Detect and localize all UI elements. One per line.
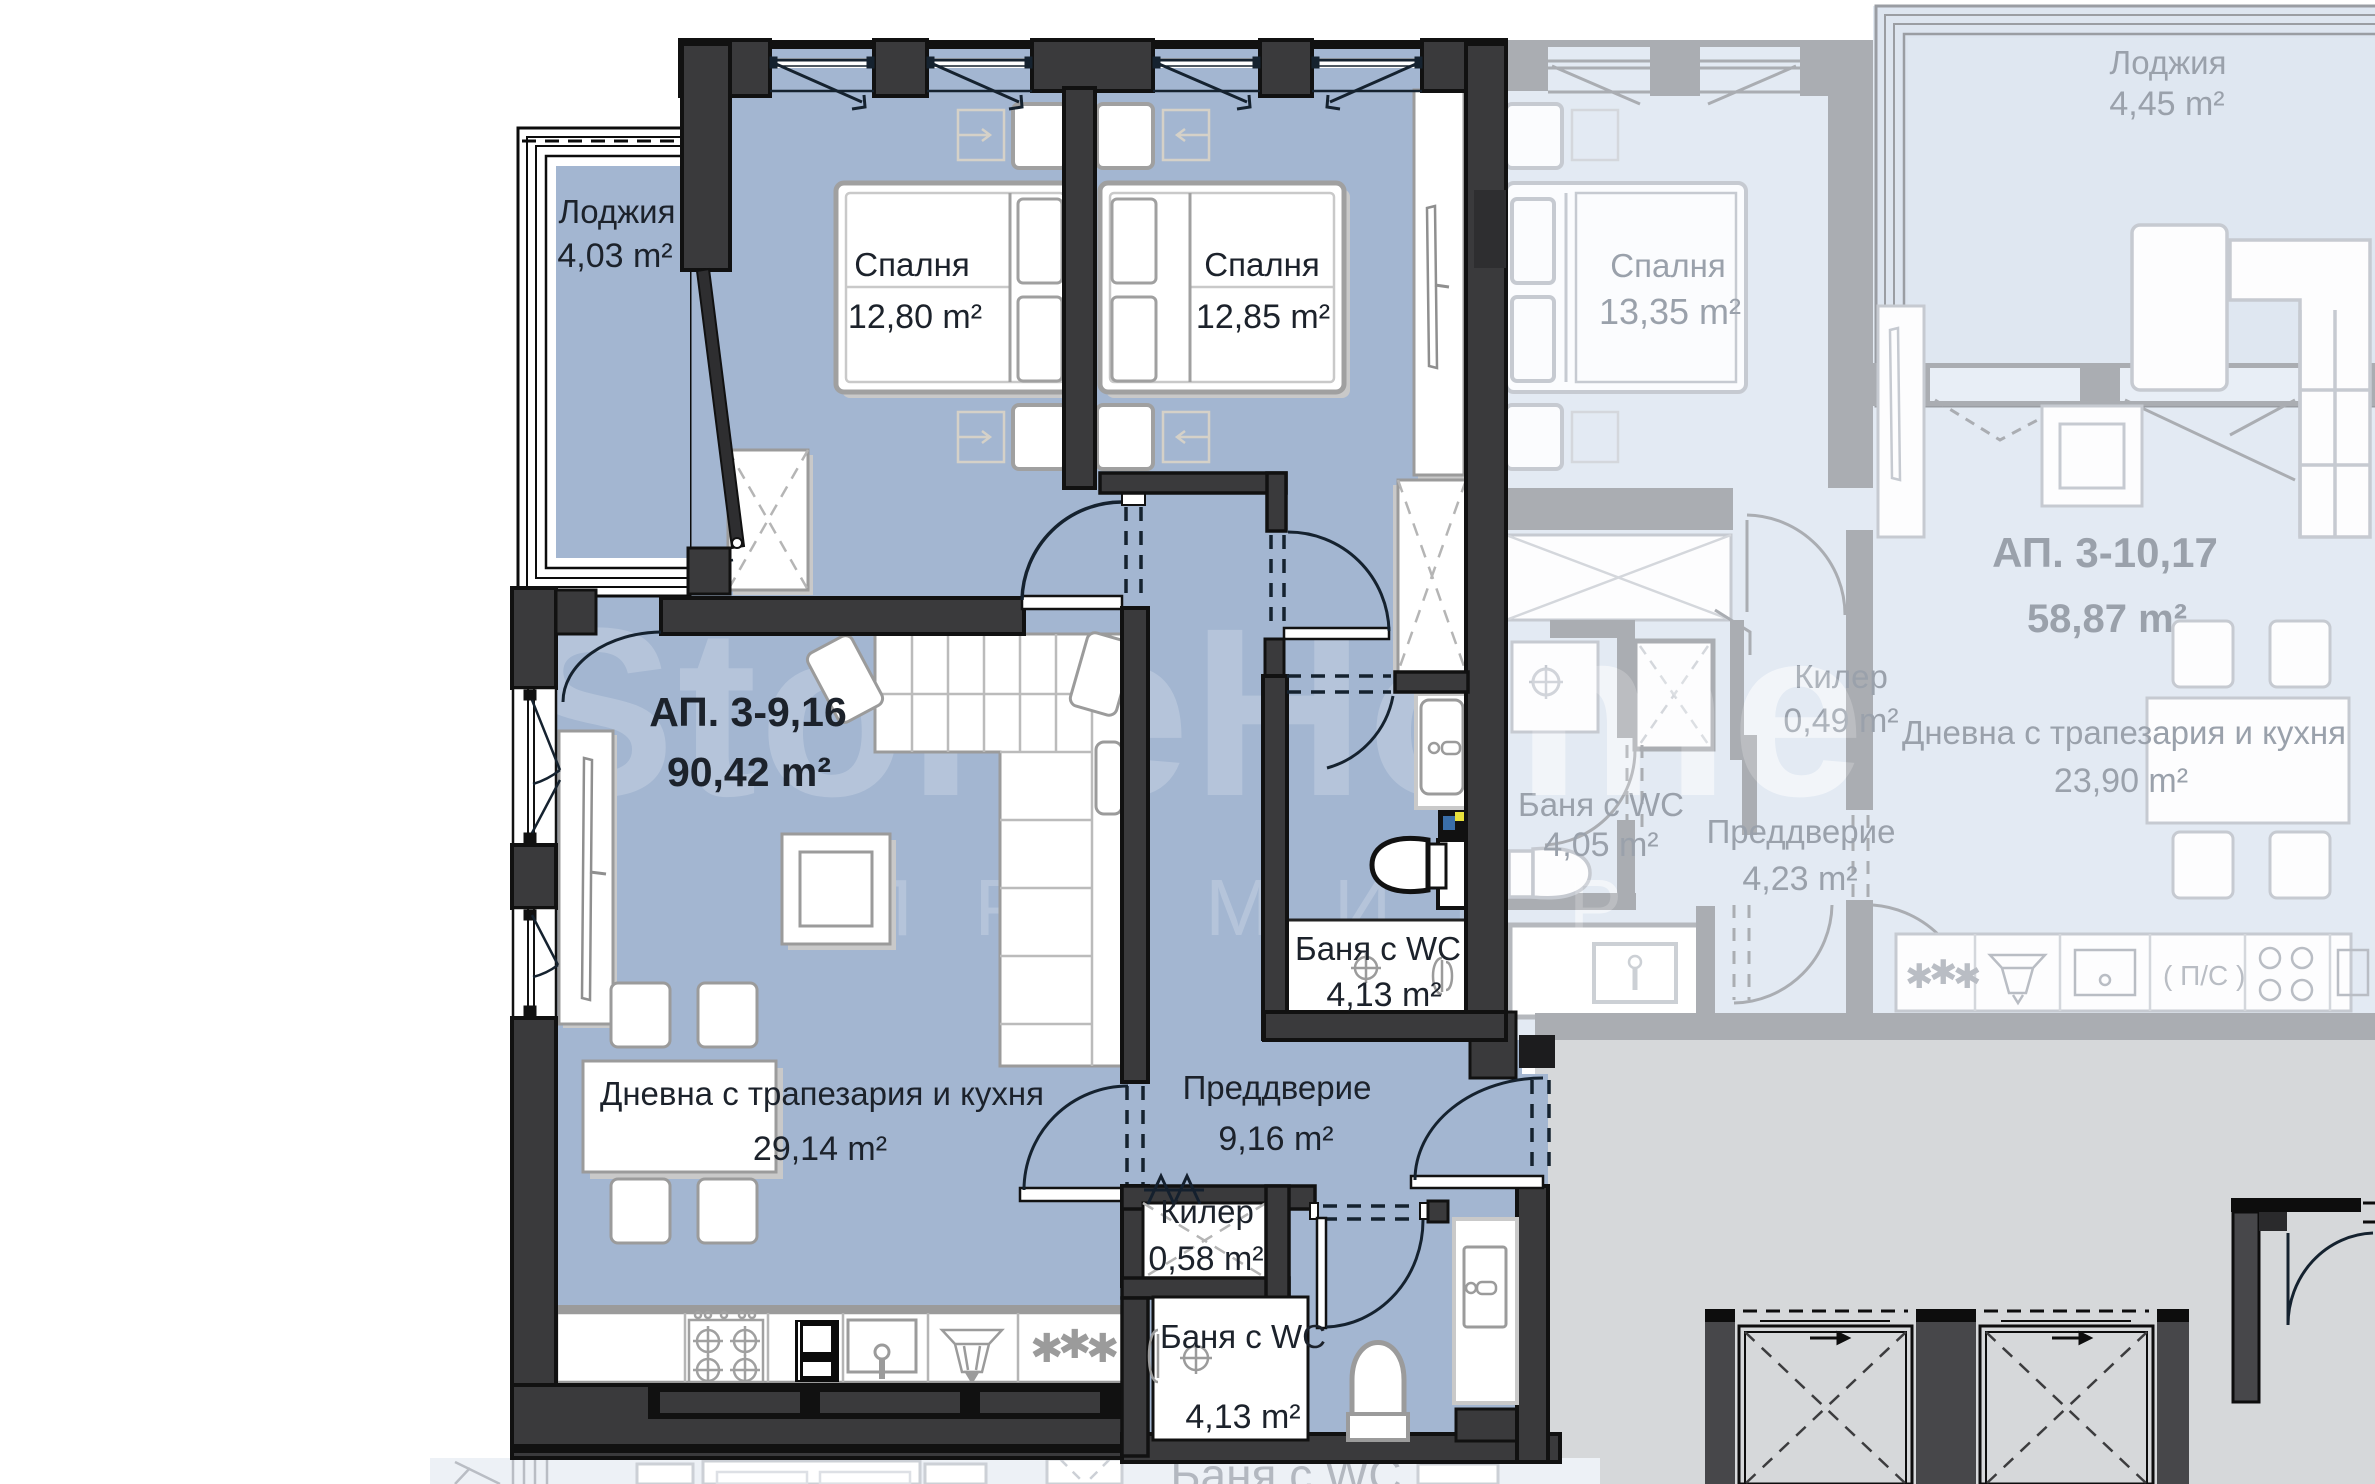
svg-text:4,13 m²: 4,13 m² [1185, 1398, 1300, 1436]
svg-text:90,42 m²: 90,42 m² [667, 749, 831, 795]
svg-text:4,23 m²: 4,23 m² [1742, 860, 1857, 898]
svg-text:( П/С ): ( П/С ) [2163, 960, 2245, 991]
svg-text:✱: ✱ [1953, 958, 1982, 996]
svg-text:12,80 m²: 12,80 m² [848, 298, 982, 336]
svg-text:Дневна с трапезария и кухня: Дневна с трапезария и кухня [600, 1075, 1044, 1112]
svg-text:Спалня: Спалня [1610, 247, 1725, 284]
svg-text:4,13 m²: 4,13 m² [1326, 976, 1441, 1014]
svg-text:Лоджия: Лоджия [2110, 44, 2227, 81]
svg-text:29,14 m²: 29,14 m² [753, 1130, 887, 1168]
svg-text:Дневна с трапезария и кухня: Дневна с трапезария и кухня [1902, 714, 2346, 751]
svg-text:58,87 m²: 58,87 m² [2027, 597, 2187, 641]
svg-text:Спалня: Спалня [854, 246, 969, 283]
svg-text:АП. 3-9,16: АП. 3-9,16 [649, 689, 847, 735]
svg-text:4,45 m²: 4,45 m² [2109, 85, 2224, 123]
svg-text:Баня с WC: Баня с WC [1160, 1318, 1326, 1355]
svg-text:Килер: Килер [1160, 1193, 1254, 1230]
svg-text:4,03 m²: 4,03 m² [557, 237, 672, 275]
svg-text:Преддверие: Преддверие [1183, 1069, 1372, 1106]
svg-text:0,58 m²: 0,58 m² [1148, 1240, 1263, 1278]
svg-text:Лоджия: Лоджия [559, 193, 676, 230]
svg-text:13,35 m²: 13,35 m² [1599, 291, 1741, 332]
svg-text:Спалня: Спалня [1204, 246, 1319, 283]
svg-text:12,85 m²: 12,85 m² [1196, 298, 1330, 336]
svg-text:✱: ✱ [1086, 1327, 1120, 1371]
svg-text:9,16 m²: 9,16 m² [1218, 1120, 1333, 1158]
svg-text:Баня с WC: Баня с WC [1295, 930, 1461, 967]
svg-text:АП. 3-10,17: АП. 3-10,17 [1992, 529, 2218, 576]
svg-text:23,90 m²: 23,90 m² [2054, 762, 2188, 800]
